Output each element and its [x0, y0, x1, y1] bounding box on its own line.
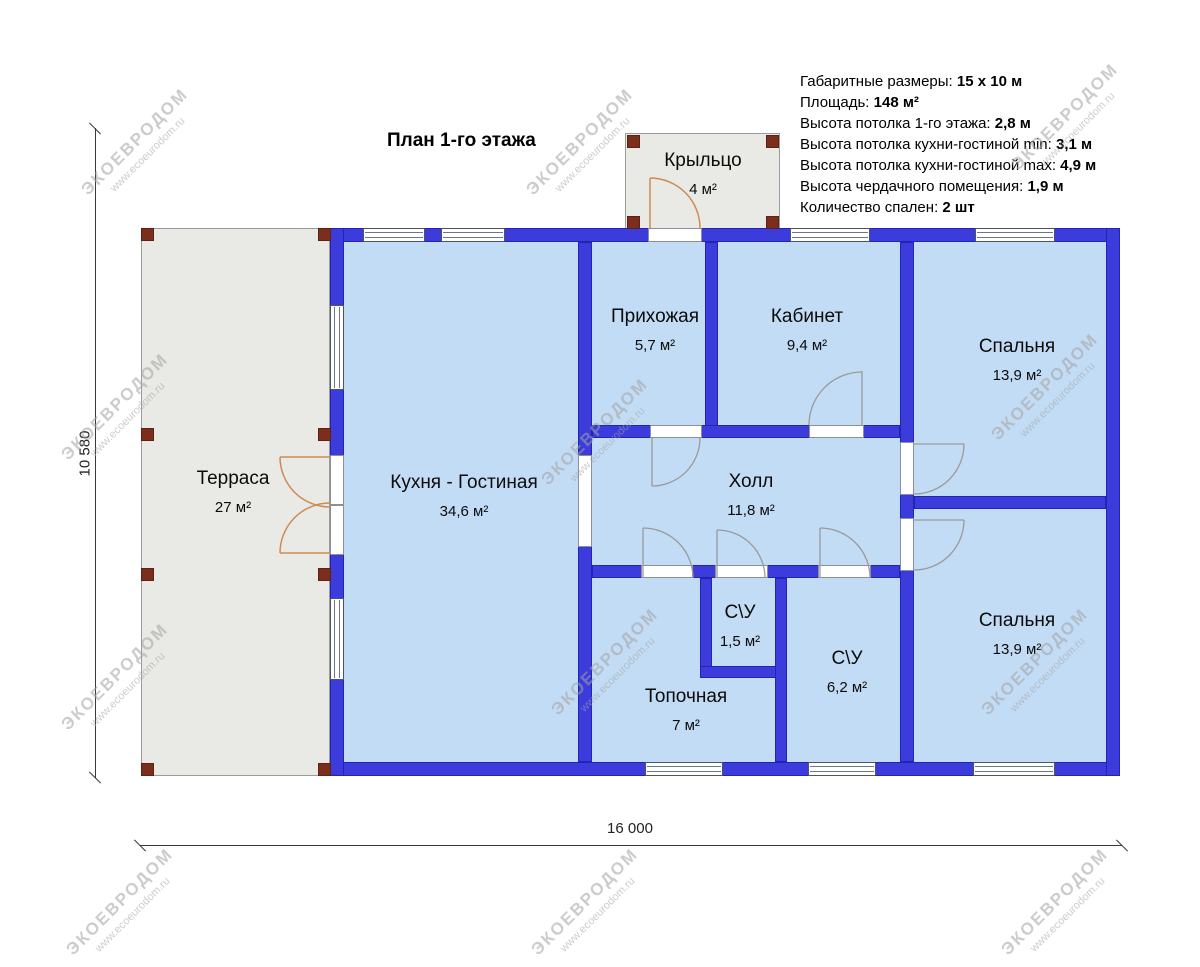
room-label-hall: Холл 11,8 м²	[666, 471, 836, 519]
post	[318, 763, 331, 776]
post	[141, 763, 154, 776]
dimension-height-label: 10 580	[77, 384, 94, 524]
window	[973, 762, 1055, 776]
floor-plan-canvas: План 1-го этажа Габаритные размеры: 15 x…	[0, 0, 1200, 967]
door-opening-wc-big	[818, 565, 871, 578]
watermark: ЭКОЕВРОДОМwww.ecoeurodom.ru	[50, 57, 230, 237]
room-label-office: Кабинет 9,4 м²	[722, 306, 892, 354]
spec-row: Количество спален: 2 шт	[800, 197, 1096, 218]
door-opening-bedroom-top	[900, 442, 914, 495]
watermark: ЭКОЕВРОДОМwww.ecoeurodom.ru	[970, 817, 1150, 967]
post	[766, 216, 779, 229]
post	[318, 228, 331, 241]
door-opening-entry-hall	[650, 425, 702, 438]
page-title: План 1-го этажа	[387, 130, 536, 152]
door-opening-entrance	[648, 228, 702, 242]
watermark: ЭКОЕВРОДОМwww.ecoeurodom.ru	[500, 817, 680, 967]
door-opening-wc-small	[715, 565, 768, 578]
door-opening-terrace-2	[330, 505, 344, 555]
window	[441, 228, 505, 242]
post	[141, 568, 154, 581]
window	[330, 305, 344, 390]
window	[330, 598, 344, 680]
door-opening-boiler	[641, 565, 693, 578]
window	[790, 228, 870, 242]
spec-row: Высота потолка кухни-гостиной max: 4,9 м	[800, 155, 1096, 176]
post	[318, 568, 331, 581]
post	[141, 428, 154, 441]
window	[645, 762, 723, 776]
opening-kitchen-hall	[578, 455, 592, 547]
watermark: ЭКОЕВРОДОМwww.ecoeurodom.ru	[35, 817, 215, 967]
dimension-line-width	[140, 845, 1122, 846]
post	[766, 135, 779, 148]
dimension-width-label: 16 000	[560, 820, 700, 837]
room-label-porch: Крыльцо 4 м²	[618, 150, 788, 198]
wall-bedroom-divider	[914, 496, 1106, 509]
post	[318, 428, 331, 441]
window	[975, 228, 1055, 242]
post	[627, 135, 640, 148]
room-label-bedroom-bottom: Спальня 13,9 м²	[932, 610, 1102, 658]
room-label-kitchen-living: Кухня - Гостиная 34,6 м²	[379, 472, 549, 520]
door-opening-office	[809, 425, 864, 438]
room-label-entry: Прихожая 5,7 м²	[570, 306, 740, 354]
room-label-wc-big: С\У 6,2 м²	[762, 648, 932, 696]
window	[363, 228, 425, 242]
spec-row: Высота потолка кухни-гостиной min: 3,1 м	[800, 134, 1096, 155]
spec-row: Высота чердачного помещения: 1,9 м	[800, 176, 1096, 197]
window	[808, 762, 876, 776]
spec-row: Высота потолка 1-го этажа: 2,8 м	[800, 113, 1096, 134]
specs-block: Габаритные размеры: 15 x 10 м Площадь: 1…	[800, 71, 1096, 218]
spec-row: Площадь: 148 м²	[800, 92, 1096, 113]
door-opening-bedroom-bottom	[900, 518, 914, 571]
room-label-terrace: Терраса 27 м²	[148, 468, 318, 516]
post	[141, 228, 154, 241]
room-label-boiler: Топочная 7 м²	[601, 686, 771, 734]
spec-row: Габаритные размеры: 15 x 10 м	[800, 71, 1096, 92]
room-label-wc-small: С\У 1,5 м²	[655, 602, 825, 650]
door-opening-terrace-1	[330, 455, 344, 505]
wall-outer-right	[1106, 228, 1120, 776]
room-label-bedroom-top: Спальня 13,9 м²	[932, 336, 1102, 384]
dimension-line-height	[95, 128, 96, 778]
post	[627, 216, 640, 229]
